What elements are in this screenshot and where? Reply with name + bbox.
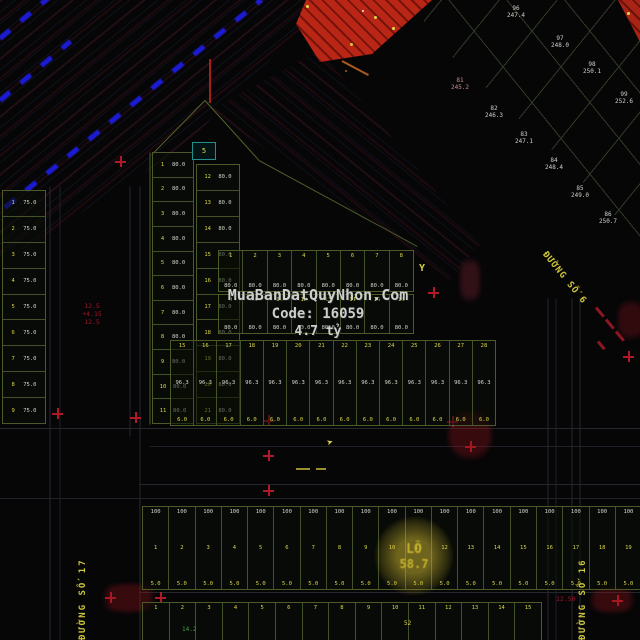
parcel: 10025.0 [169,507,195,589]
speck [345,70,347,72]
parcel: 1796.36.0 [217,341,240,425]
parcel-number: 11 [418,605,425,611]
parcel: 675.0 [3,320,45,346]
parcel-area: 15 [520,545,527,551]
parcel-number: 14 [204,226,211,232]
map-line [342,60,369,76]
map-line [0,428,640,429]
grid-parcel-label: 85249.0 [566,186,594,199]
red-cross-marker [115,156,126,167]
map-line [316,468,326,470]
street-name-left-vertical: ĐƯỜNG SỐ 17 [78,498,88,640]
parcel-number: 4 [161,236,164,242]
parcel-area: 80.0 [218,174,231,180]
parcel: 10055.0 [248,507,274,589]
parcel-number: 3 [161,211,164,217]
parcel-area: 96.3 [477,380,490,386]
parcel-number: 19 [272,343,279,349]
red-cross-marker [52,408,63,419]
map-line [140,592,640,593]
parcel-area: 5.0 [177,581,187,587]
parcel-number: 27 [457,343,464,349]
parcel-area: 96.3 [431,380,444,386]
parcel-area: 5.0 [492,581,502,587]
parcel: 275.0 [3,217,45,243]
parcel-area: 2 [180,545,183,551]
parcel-area: 75.0 [23,382,36,388]
parcel-number: 7 [11,356,14,362]
parcel-area: 80.0 [172,260,185,266]
grid-parcel-label: 97248.0 [546,36,574,49]
parcel-number: 100 [203,509,213,515]
parcel: 580.0 [153,252,193,277]
parcel-number: 1 [229,253,232,259]
parcel: 10015.0 [143,507,169,589]
grid-parcel-label: 86250.7 [594,212,622,225]
red-cross-marker [130,412,141,423]
red-smudge [460,252,480,308]
grid-parcel-label: 81245.2 [446,78,474,91]
speck [374,16,377,19]
parcel: 100145.0 [484,507,510,589]
y-benchmark-label: Y [419,263,425,274]
parcel: 10065.0 [274,507,300,589]
parcel-area: 5 [259,545,262,551]
parcel-number: 2 [181,605,184,611]
bottom-yellow-note: 52 [404,621,411,628]
parcel: 2696.36.0 [426,341,449,425]
parcel-number: 100 [440,509,450,515]
parcel-number: 4 [11,278,14,284]
parcel: 8 [329,603,356,640]
parcel-strip-strip-south2: 123456789101112131415 [142,602,542,640]
speck [362,10,364,12]
parcel: 480.0 [292,251,316,291]
parcel: 1696.36.0 [194,341,217,425]
parcel-number: 100 [466,509,476,515]
map-line [140,484,640,485]
parcel: 13 [462,603,489,640]
parcel-number: 6 [11,330,14,336]
parcel-area: 6.0 [293,417,303,423]
parcel-number: 4 [234,605,237,611]
map-line [150,153,151,425]
parcel: 2196.36.0 [310,341,333,425]
parcel-number: 5 [161,260,164,266]
arrow-marker-icon: ➤ [325,436,335,450]
parcel: 100155.0 [511,507,537,589]
parcel-number: 7 [314,605,317,611]
map-line [597,341,606,351]
parcel-area: 75.0 [23,200,36,206]
parcel-number: 5 [327,253,330,259]
parcel: 380.0 [268,251,292,291]
parcel-number: 23 [365,343,372,349]
grid-parcel-label: 84248.4 [540,158,568,171]
parcel-area: 4 [233,545,236,551]
parcel: 780.0 [365,251,389,291]
parcel-number: 100 [387,509,397,515]
parcel-number: 3 [207,605,210,611]
parcel-number: 12 [204,174,211,180]
map-line [150,446,640,447]
parcel-number: 100 [413,509,423,515]
parcel-area: 96.3 [408,380,421,386]
parcel-number: 11 [160,408,167,414]
speck [306,5,309,8]
parcel-number: 20 [295,343,302,349]
red-cross-marker [263,450,274,461]
red-zone-polygon [296,0,436,64]
parcel-area: 80.0 [218,200,231,206]
parcel-area: 5.0 [466,581,476,587]
parcel: 7 [303,603,330,640]
parcel-area: 75.0 [23,304,36,310]
parcel-area: 5.0 [361,581,371,587]
parcel-number: 9 [11,408,14,414]
parcel-number: 3 [278,253,281,259]
parcel: 15 [515,603,541,640]
parcel-number: 100 [518,509,528,515]
parcel-area: 96.3 [384,380,397,386]
parcel-area: 96.3 [292,380,305,386]
parcel-number: 100 [361,509,371,515]
parcel: 880.0 [390,251,413,291]
parcel-area: 96.3 [361,380,374,386]
parcel: 9 [356,603,383,640]
parcel-area: 5.0 [335,581,345,587]
parcel-area: 6.0 [316,417,326,423]
parcel-area: 3 [207,545,210,551]
parcel-area: 96.3 [338,380,351,386]
parcel-number: 12 [445,605,452,611]
parcel-number: 100 [623,509,633,515]
parcel: 5 [249,603,276,640]
parcel-number: 15 [204,252,211,258]
parcel-area: 75.0 [23,278,36,284]
parcel-area: 96.3 [245,380,258,386]
parcel-area: 5.0 [282,581,292,587]
map-line [0,498,640,499]
parcel-area: 14 [494,545,501,551]
parcel-number: 10 [392,605,399,611]
parcel-number: 100 [177,509,187,515]
parcel-number: 100 [151,509,161,515]
parcel-area: 5.0 [545,581,555,587]
parcel-area: 18 [599,545,606,551]
parcel-area: 9 [364,545,367,551]
parcel-area: 19 [625,545,632,551]
parcel-number: 22 [341,343,348,349]
parcel: 11 [409,603,436,640]
grid-parcel-label: 82246.3 [480,106,508,119]
parcel-area: 75.0 [23,356,36,362]
parcel-area: 6.0 [479,417,489,423]
parcel-area: 5.0 [308,581,318,587]
parcel: 575.0 [3,295,45,321]
parcel: 975.0 [3,398,45,423]
parcel-area: 80.0 [172,236,185,242]
parcel: 3 [196,603,223,640]
red-smudge [618,296,640,344]
parcel-area: 5.0 [518,581,528,587]
parcel-number: 100 [229,509,239,515]
parcel-number: 17 [225,343,232,349]
parcel: 10045.0 [222,507,248,589]
parcel-area: 5.0 [151,581,161,587]
parcel-number: 100 [256,509,266,515]
parcel-area: 96.3 [315,380,328,386]
parcel-number: 7 [375,253,378,259]
parcel: 2596.36.0 [403,341,426,425]
parcel-number: 15 [525,605,532,611]
parcel: 6 [276,603,303,640]
parcel: 175.0 [3,191,45,217]
parcel-number: 100 [335,509,345,515]
parcel: 2096.36.0 [287,341,310,425]
parcel: 1 [143,603,170,640]
parcel-number: 100 [545,509,555,515]
parcel: 775.0 [3,346,45,372]
parcel-area: 80.0 [172,162,185,168]
parcel-number: 5 [11,304,14,310]
grid-parcel-label: 99252.6 [610,92,638,105]
parcel: 680.0 [341,251,365,291]
parcel-area: 6.0 [409,417,419,423]
speck [350,43,353,46]
cad-map-viewport[interactable]: 96247.497248.098250.199252.681245.282246… [0,0,640,640]
parcel: 1896.36.0 [241,341,264,425]
parcel-number: 25 [411,343,418,349]
parcel: 375.0 [3,243,45,269]
grid-parcel-label: 98250.1 [578,62,606,75]
parcel: 1380.0 [197,191,239,217]
parcel-area: 1 [154,545,157,551]
parcel-number: 2 [11,226,14,232]
parcel-number: 100 [282,509,292,515]
parcel: 180.0 [219,251,243,291]
parcel-area: 75.0 [23,252,36,258]
speck [392,27,395,30]
parcel-area: 16 [546,545,553,551]
parcel: 14 [489,603,516,640]
parcel-area: 6.0 [340,417,350,423]
parcel-number: 10 [160,384,167,390]
parcel: 100185.0 [590,507,616,589]
parcel: 680.0 [153,276,193,301]
parcel-area: 6.0 [363,417,373,423]
parcel-number: 9 [367,605,370,611]
parcel-number: 28 [481,343,488,349]
street-name-right-vertical: ĐƯỜNG SỐ 16 [578,492,588,640]
parcel-number: 100 [492,509,502,515]
parcel-number: 26 [434,343,441,349]
parcel: 2896.36.0 [473,341,495,425]
speck [627,12,630,15]
parcel-number: 13 [204,200,211,206]
parcel-area: 80.0 [172,285,185,291]
parcel: 12 [436,603,463,640]
parcel-area: 96.3 [454,380,467,386]
parcel: 480.0 [153,227,193,252]
parcel-area: 80.0 [218,226,231,232]
parcel-area: 6.0 [456,417,466,423]
parcel-area: 75.0 [23,330,36,336]
parcel: 100135.0 [458,507,484,589]
parcel-area: 80.0 [172,186,185,192]
parcel-area: 6.0 [177,417,187,423]
parcel: 1480.0 [197,217,239,243]
watermark-price: 4.7 tỷ [198,324,438,339]
parcel: 875.0 [3,372,45,398]
parcel-number: 16 [202,343,209,349]
parcel-area: 5.0 [203,581,213,587]
parcel-number: 6 [287,605,290,611]
grid-parcel-label: 83247.1 [510,132,538,145]
parcel-number: 100 [597,509,607,515]
parcel-number: 1 [11,200,14,206]
parcel: 180.0 [153,153,193,178]
road-red-annotation: 12.5 +4.15 12.5 [52,302,132,326]
parcel-number: 24 [388,343,395,349]
watermark: MuaBanDatQuyNhon.Com Code: 16059 4.7 tỷ [198,286,438,339]
parcel-number: 100 [308,509,318,515]
parcel-area: 75.0 [23,408,36,414]
parcel-number: 3 [11,252,14,258]
parcel: 10035.0 [196,507,222,589]
parcel: 280.0 [153,178,193,203]
parcel: 1996.36.0 [264,341,287,425]
parcel-area: 96.3 [222,380,235,386]
map-line [296,468,310,470]
parcel: 100195.0 [616,507,640,589]
parcel-number: 2 [253,253,256,259]
parcel-area: 13 [468,545,475,551]
parcel: 380.0 [153,202,193,227]
south-road-red-annotation: 12.50 [556,595,576,603]
map-line [50,187,51,640]
red-smudge [584,588,640,612]
block-label-box: 5 [192,142,216,160]
parcel: 780.0 [153,301,193,326]
grid-parcel-label: 96247.4 [502,6,530,19]
parcel-number: 4 [302,253,305,259]
parcel: 2296.36.0 [334,341,357,425]
parcel: 1596.36.0 [171,341,194,425]
watermark-code: Code: 16059 [198,306,438,322]
parcel-number: 8 [340,605,343,611]
parcel-area: 6.0 [270,417,280,423]
parcel-number: 8 [11,382,14,388]
parcel: 475.0 [3,269,45,295]
parcel-area: 75.0 [23,226,36,232]
parcel-number: 5 [261,605,264,611]
parcel-area: 6.0 [433,417,443,423]
parcel-number: 6 [161,285,164,291]
red-cross-marker [263,485,274,496]
parcel: 2396.36.0 [357,341,380,425]
parcel-area: 8 [338,545,341,551]
parcel: 100165.0 [537,507,563,589]
parcel-area: 6.0 [247,417,257,423]
parcel-strip-left-strip: 175.0275.0375.0475.0575.0675.0775.0875.0… [2,190,46,424]
parcel-number: 16 [204,278,211,284]
parcel-number: 9 [161,359,164,365]
parcel-number: 8 [161,334,164,340]
map-line [209,59,211,103]
parcel: 2496.36.0 [380,341,403,425]
parcel-number: 13 [472,605,479,611]
parcel-area: 96.3 [199,380,212,386]
watermark-site: MuaBanDatQuyNhon.Com [198,286,438,304]
parcel-strip-band-bottom: 1596.36.01696.36.01796.36.01896.36.01996… [170,340,496,426]
parcel-area: 80.0 [172,211,185,217]
parcel-area: 6 [285,545,288,551]
parcel: 2796.36.0 [450,341,473,425]
parcel: 580.0 [317,251,341,291]
parcel-area: 96.3 [268,380,281,386]
parcel-area: 5.0 [229,581,239,587]
parcel-number: 2 [161,186,164,192]
parcel: 2 [170,603,197,640]
parcel-area: 80.0 [172,310,185,316]
parcel-area: 6.0 [200,417,210,423]
parcel-area: 96.3 [175,380,188,386]
parcel-area: 5.0 [256,581,266,587]
parcel-number: 8 [400,253,403,259]
parcel-number: 1 [154,605,157,611]
bottom-green-note: 14.2 [182,627,196,634]
parcel: 1280.0 [197,165,239,191]
parcel-area: 7 [312,545,315,551]
parcel: 4 [223,603,250,640]
parcel-area: 6.0 [224,417,234,423]
parcel-area: 5.0 [623,581,633,587]
parcel: 10085.0 [327,507,353,589]
parcel-number: 1 [161,162,164,168]
parcel-number: 15 [179,343,186,349]
parcel: 280.0 [243,251,267,291]
parcel: 10075.0 [301,507,327,589]
parcel-area: 6.0 [386,417,396,423]
parcel-number: 7 [161,310,164,316]
parcel-number: 21 [318,343,325,349]
highlighted-lot-stamp: LÔ 58.7 [374,516,454,596]
parcel-number: 6 [351,253,354,259]
parcel-area: 5.0 [597,581,607,587]
parcel-number: 14 [498,605,505,611]
parcel-number: 18 [248,343,255,349]
